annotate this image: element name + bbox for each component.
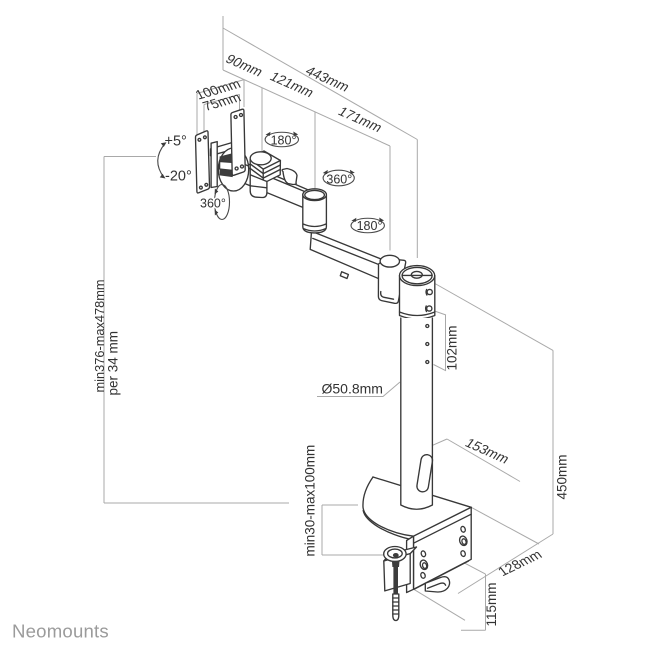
svg-text:+5°: +5° [165, 134, 187, 150]
svg-text:171mm: 171mm [335, 104, 385, 135]
svg-text:115mm: 115mm [484, 582, 499, 626]
svg-text:180°: 180° [271, 133, 297, 147]
svg-text:360°: 360° [326, 172, 352, 186]
svg-text:90mm: 90mm [223, 52, 266, 80]
svg-text:153mm: 153mm [462, 436, 512, 467]
svg-text:Ø50.8mm: Ø50.8mm [322, 381, 383, 397]
svg-text:102mm: 102mm [445, 325, 460, 370]
svg-text:Neomounts: Neomounts [12, 621, 109, 642]
svg-text:per 34 mm: per 34 mm [106, 331, 121, 396]
svg-text:360°: 360° [200, 197, 226, 211]
svg-text:450mm: 450mm [555, 454, 570, 499]
svg-text:180°: 180° [357, 219, 383, 233]
svg-text:min30-max100mm: min30-max100mm [303, 445, 318, 557]
svg-text:128mm: 128mm [495, 547, 545, 579]
svg-text:-20°: -20° [165, 169, 192, 185]
